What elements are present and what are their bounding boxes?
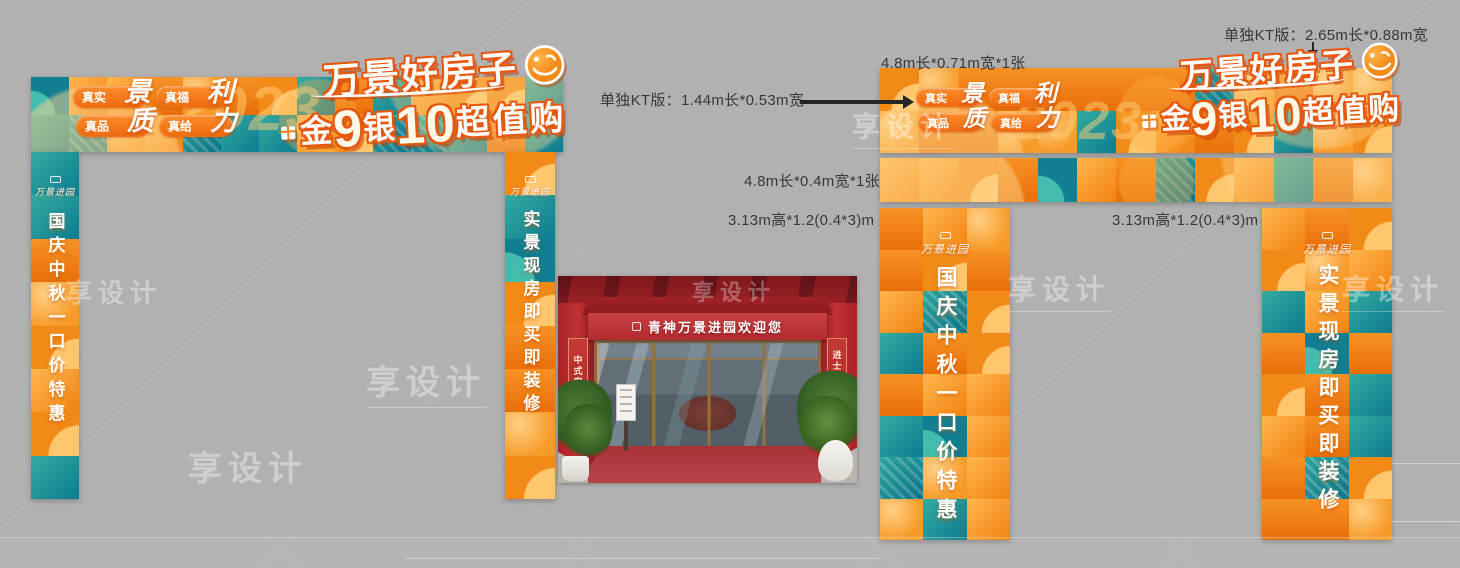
pill-zhengeili: 真给 力 (991, 113, 1055, 132)
right-arch-header-band: 2023 真实 景 真福 利 真品 质 (880, 68, 1392, 153)
bottom-tint (0, 537, 1460, 568)
mosaic-tile (1262, 416, 1305, 458)
photo-sign-text: 青神万景进园欢迎您 (648, 317, 783, 336)
pill-script-char: 力 (1036, 107, 1059, 130)
mosaic-tile (967, 291, 1010, 333)
pill-text: 真实 (925, 90, 947, 106)
right-arch-right-pillar: 万景进园 实景现房即买即装修 (1262, 208, 1392, 540)
pill-text: 真品 (85, 118, 109, 135)
mosaic-tile (1262, 499, 1305, 541)
mosaic-tile (1234, 158, 1273, 202)
photo-sign-stand (616, 384, 635, 421)
right-arch-title-group: 万景好房子 金 9 银 10 超值购 (1142, 50, 1452, 137)
brand-logo-text: 万景进园 (35, 187, 75, 197)
mosaic-tile (967, 333, 1010, 375)
subtitle-tail: 超值购 (455, 101, 568, 141)
annotation-pillar-right: 3.13m高*1.2(0.4*3)m (1112, 209, 1258, 230)
watermark-line (1392, 521, 1460, 522)
pill-zhenpinzhi: 真品 质 (76, 115, 150, 137)
mosaic-tile (880, 291, 923, 333)
smiley-icon (1359, 40, 1400, 81)
mosaic-tile (880, 333, 923, 375)
left-arch-right-pillar: 万景进园 实景现房即买即装修 (505, 152, 555, 499)
brand-logo-text: 万景进园 (1303, 244, 1351, 256)
pill-zhenfuli: 真福 利 (156, 86, 230, 108)
mosaic-tile (1038, 158, 1077, 202)
pill-text: 真福 (165, 89, 189, 106)
subtitle-tail: 超值购 (1302, 93, 1402, 129)
mosaic-tile (505, 412, 555, 455)
mosaic-tile (1313, 158, 1352, 202)
pill-script-char: 质 (127, 108, 154, 135)
subtitle-number: 10 (395, 98, 457, 153)
mosaic-tile (880, 374, 923, 416)
photo-sign-stand-leg (624, 421, 628, 450)
subtitle-char: 金 (299, 114, 334, 148)
mosaic-tile (880, 457, 923, 499)
right-arch-lower-band (880, 158, 1392, 202)
mosaic-tile (967, 416, 1010, 458)
mosaic-tile (1262, 291, 1305, 333)
brand-logo: 万景进园 (31, 176, 79, 198)
brand-logo: 万景进园 (880, 232, 1010, 257)
gift-icon (281, 126, 296, 140)
site-watermark: 享设计 (692, 282, 776, 304)
mosaic-tile (1349, 416, 1392, 458)
left-arch-left-pillar: 万景进园 国庆中秋一口价特惠 (31, 152, 79, 499)
mosaic-tile (505, 456, 555, 499)
mosaic-tile (1262, 457, 1305, 499)
mosaic-tile (1116, 158, 1155, 202)
site-watermark: 享设计 (1342, 276, 1444, 312)
brand-logo-text: 万景进园 (921, 244, 969, 256)
site-watermark: 享设计 (1008, 276, 1110, 312)
pill-zhengeili: 真给 力 (159, 115, 233, 137)
pill-text: 真给 (1000, 115, 1022, 131)
mosaic-pattern (880, 158, 1392, 202)
left-pillar-slogan: 国庆中秋一口价特惠 (930, 266, 960, 527)
mosaic-tile (1349, 499, 1392, 541)
left-pillar-slogan: 国庆中秋一口价特惠 (43, 212, 68, 428)
mosaic-tile (1262, 333, 1305, 375)
mosaic-tile (1274, 158, 1313, 202)
design-mockup-canvas: 2023 真实 景 真福 利 真品 质 (0, 0, 1460, 568)
pill-script-char: 质 (963, 107, 986, 130)
annotation-band-bottom: 4.8m长*0.4m宽*1张 (744, 170, 880, 191)
entrance-photo: 青神万景进园欢迎您 中式府邸 进士文化 第 (558, 276, 857, 483)
mosaic-tile (1262, 374, 1305, 416)
subtitle-number: 10 (1247, 90, 1304, 140)
pill-text: 真实 (82, 89, 106, 106)
right-pillar-slogan: 实景现房即买即装修 (1312, 264, 1342, 516)
mosaic-tile (880, 416, 923, 458)
right-arrow-icon (800, 95, 914, 109)
mosaic-tile (1349, 457, 1392, 499)
gift-icon (1142, 114, 1157, 128)
left-arch-title-group: 万景好房子 金 9 银 10 超值购 (281, 53, 621, 150)
mosaic-tile (31, 115, 69, 153)
pill-text: 真福 (998, 90, 1020, 106)
photo-awning-sign: 青神万景进园欢迎您 (588, 313, 827, 340)
site-watermark: 享设计 (852, 113, 954, 149)
annotation-band-top: 4.8m长*0.71m宽*1张 (881, 52, 1026, 73)
pill-script-char: 利 (207, 79, 234, 106)
subtitle-number: 9 (1190, 94, 1220, 142)
site-watermark: 享设计 (366, 366, 486, 408)
mosaic-tile (1077, 158, 1116, 202)
mosaic-tile (31, 77, 69, 115)
brand-logo: 万景进园 (505, 176, 555, 198)
pill-script-char: 景 (961, 82, 984, 105)
right-pillar-slogan: 实景现房即买即装修 (518, 210, 543, 417)
photo-planter (562, 456, 589, 481)
brand-logo-text: 万景进园 (510, 187, 550, 197)
left-arch-header-band: 2023 真实 景 真福 利 真品 质 (31, 77, 563, 152)
subtitle-char: 银 (1218, 102, 1249, 133)
slogan-pills: 真实 景 真福 利 真品 质 真给 力 (73, 86, 233, 137)
mosaic-tile (1195, 158, 1234, 202)
right-arch-left-pillar: 万景进园 国庆中秋一口价特惠 (880, 208, 1010, 540)
mosaic-tile (967, 457, 1010, 499)
pill-script-char: 利 (1034, 82, 1057, 105)
mosaic-tile (1349, 333, 1392, 375)
site-watermark: 享设计 (188, 452, 308, 486)
brand-logo: 万景进园 (1262, 232, 1392, 257)
subtitle-char: 金 (1160, 105, 1191, 136)
brand-logo-icon (940, 232, 951, 239)
watermark-line (1392, 463, 1460, 464)
subtitle-number: 9 (332, 103, 365, 156)
mosaic-tile (919, 158, 958, 202)
annotation-pillar-left: 3.13m高*1.2(0.4*3)m (728, 209, 874, 230)
pill-script-char: 力 (210, 108, 237, 135)
mosaic-tile (967, 374, 1010, 416)
mosaic-tile (1349, 374, 1392, 416)
brand-logo-icon (525, 176, 536, 183)
mosaic-tile (959, 158, 998, 202)
pill-text: 真给 (168, 118, 192, 135)
pill-zhenshijing: 真实 景 (73, 86, 147, 108)
pill-script-char: 景 (124, 79, 151, 106)
mosaic-tile (1156, 158, 1195, 202)
photo-planter (818, 440, 852, 481)
site-watermark: 享设计 (66, 280, 162, 306)
mosaic-tile (31, 456, 79, 499)
smiley-icon (522, 42, 567, 87)
mosaic-tile (1353, 158, 1392, 202)
mosaic-tile (880, 158, 919, 202)
brand-logo-icon (50, 176, 61, 183)
mosaic-tile (998, 158, 1037, 202)
plant-icon (564, 404, 612, 458)
annotation-kt-panel-small: 单独KT版：1.44m长*0.53m宽 (600, 89, 804, 110)
mosaic-tile (880, 499, 923, 541)
brand-logo-icon (1322, 232, 1333, 239)
mosaic-tile (967, 499, 1010, 541)
sign-logo-icon (632, 322, 641, 331)
subtitle-char: 银 (362, 111, 397, 145)
photo-red-carpet (573, 446, 842, 483)
